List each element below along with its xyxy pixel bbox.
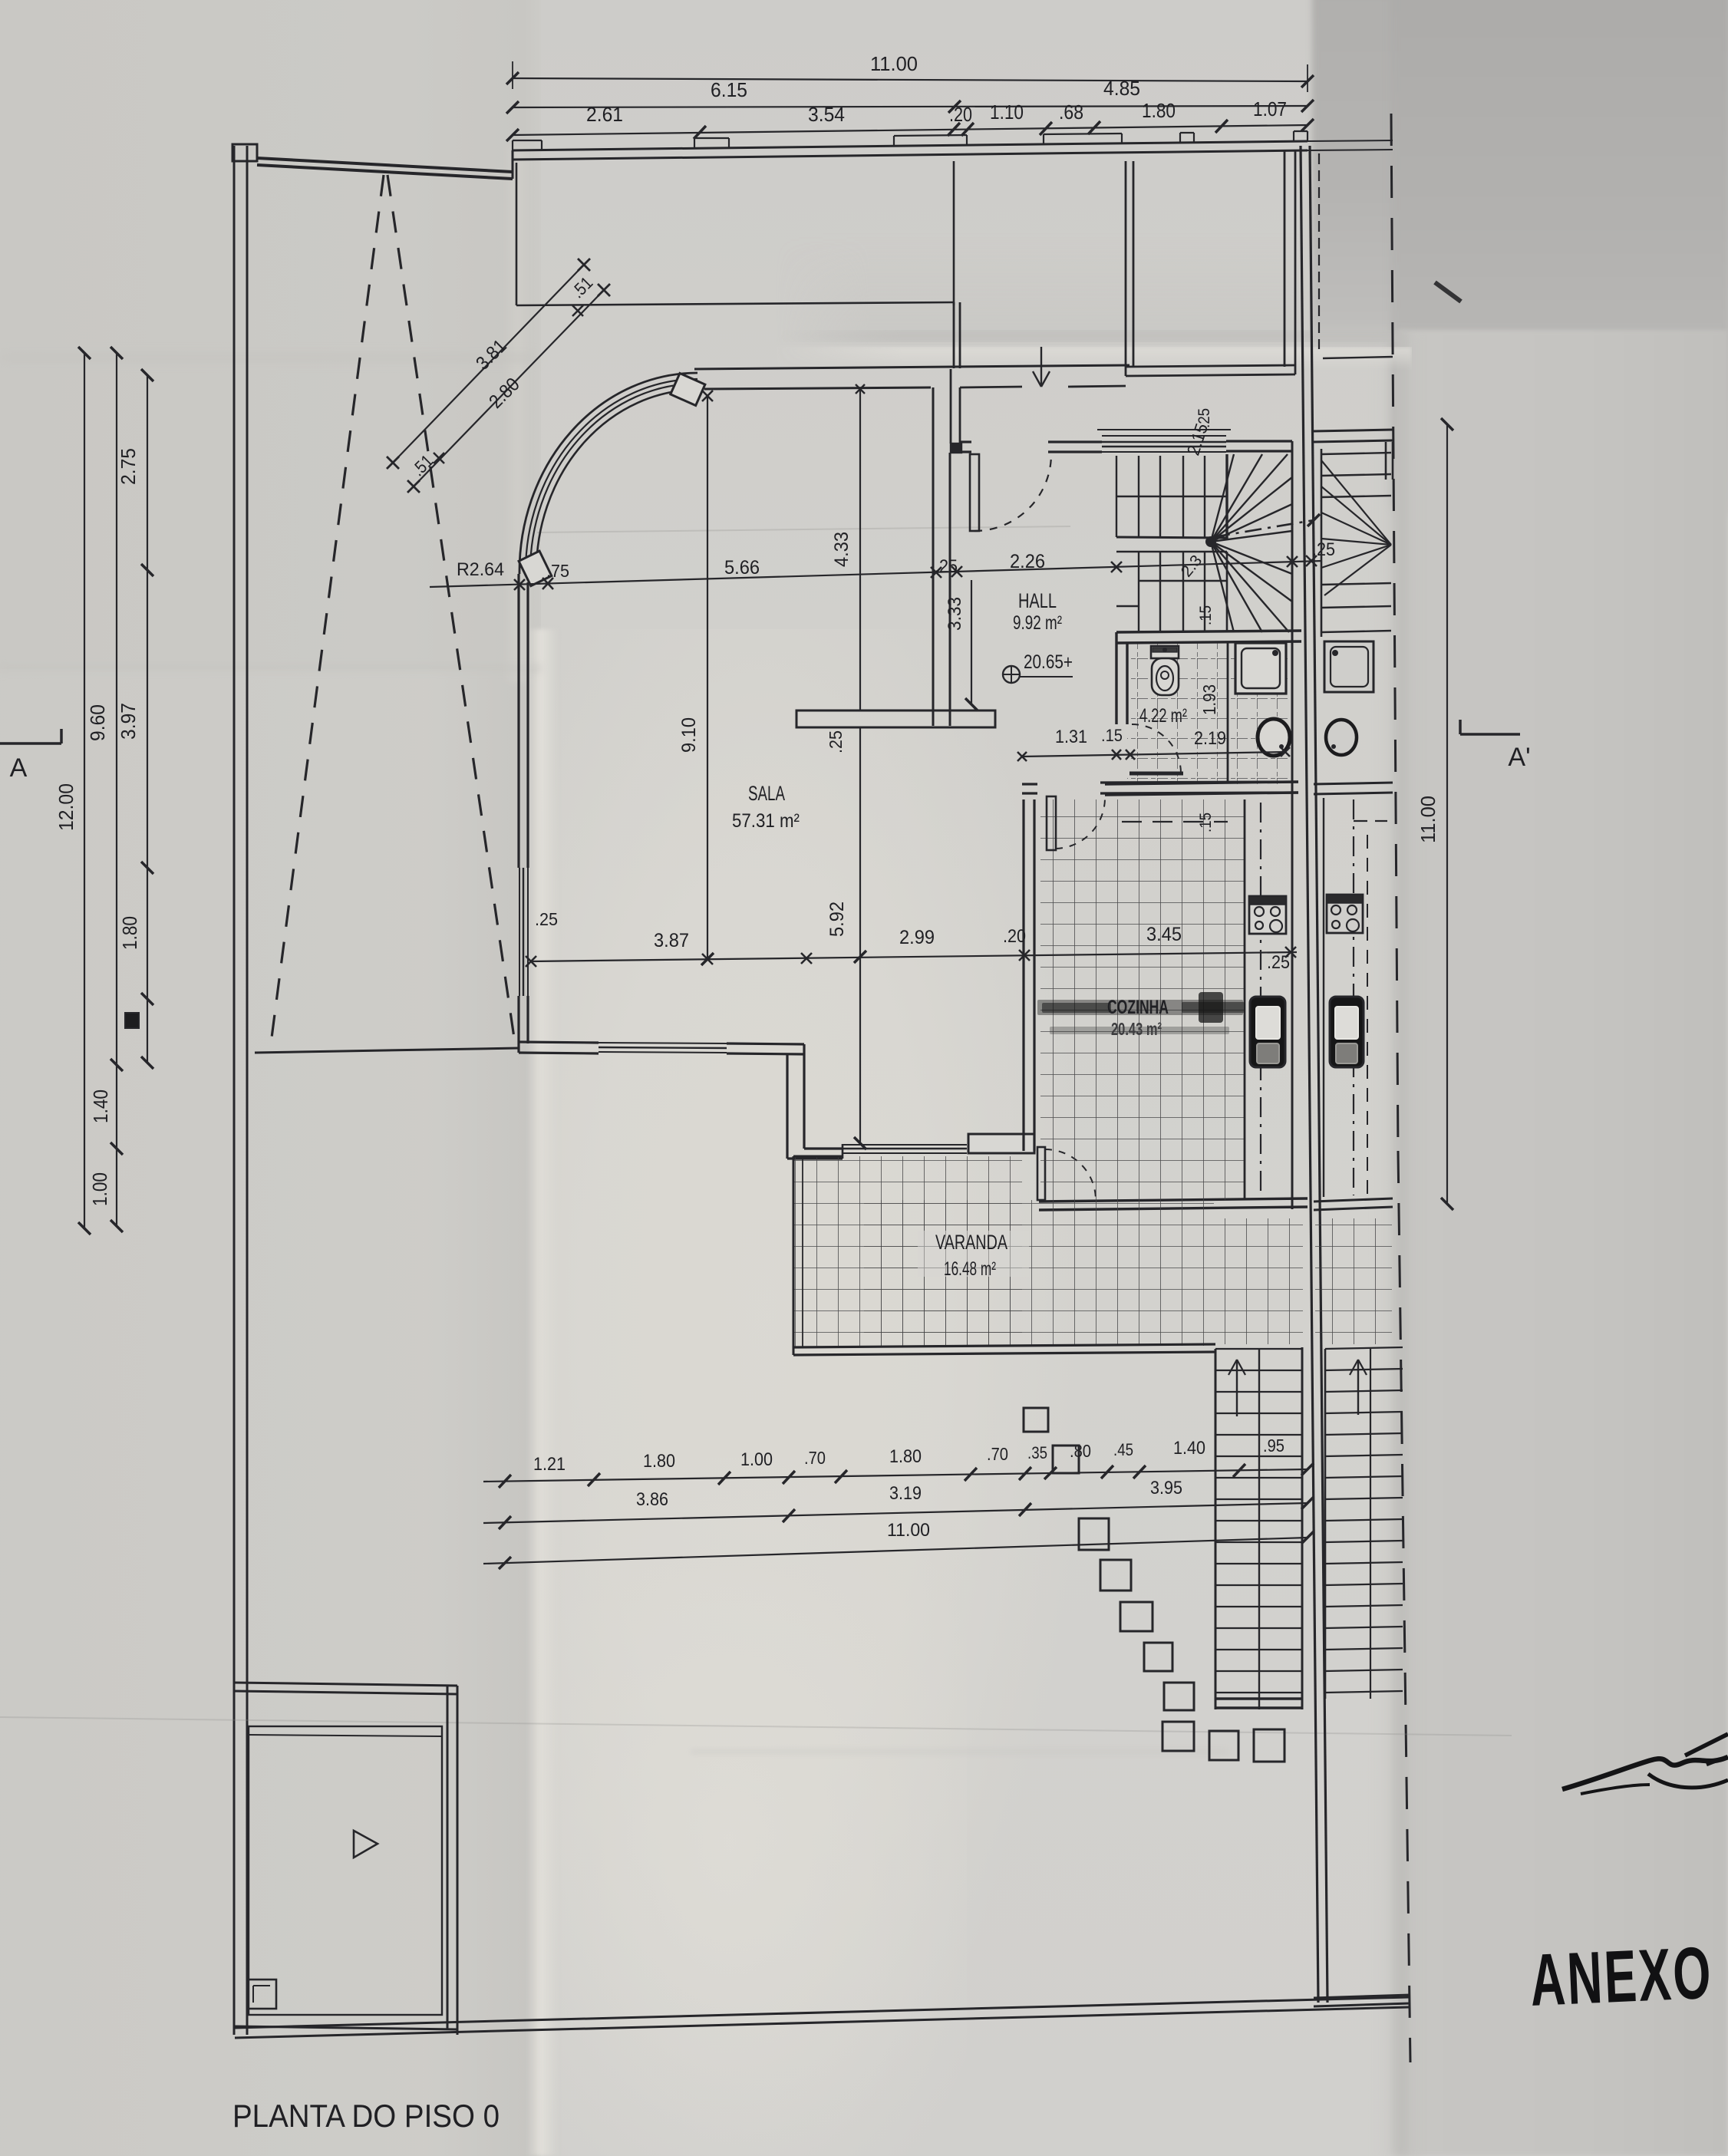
svg-text:1.40: 1.40 <box>1173 1438 1205 1459</box>
svg-text:.68: .68 <box>1059 101 1083 124</box>
svg-text:12.00: 12.00 <box>54 783 77 831</box>
svg-text:2.26: 2.26 <box>1010 551 1045 572</box>
svg-text:PLANTA DO PISO 0: PLANTA DO PISO 0 <box>232 2098 500 2134</box>
svg-text:3.81: 3.81 <box>472 335 511 374</box>
svg-text:5.66: 5.66 <box>724 557 760 579</box>
svg-text:.35: .35 <box>1027 1443 1047 1462</box>
svg-text:.25: .25 <box>1195 408 1213 428</box>
svg-text:2.99: 2.99 <box>899 927 935 948</box>
svg-text:5.92: 5.92 <box>826 902 848 937</box>
svg-text:6.15: 6.15 <box>711 78 747 101</box>
svg-text:3.33: 3.33 <box>945 597 965 631</box>
svg-text:1.80: 1.80 <box>643 1451 675 1472</box>
svg-text:1.31: 1.31 <box>1055 727 1087 747</box>
svg-text:.15: .15 <box>1197 813 1215 832</box>
svg-text:3.19: 3.19 <box>889 1483 922 1504</box>
svg-text:.15: .15 <box>1197 605 1215 625</box>
svg-text:11.00: 11.00 <box>1416 796 1439 843</box>
svg-text:.45: .45 <box>1113 1440 1133 1459</box>
svg-text:.15: .15 <box>1101 726 1123 745</box>
svg-text:9.92 m²: 9.92 m² <box>1013 612 1062 634</box>
svg-text:HALL: HALL <box>1018 589 1057 612</box>
svg-text:.25: .25 <box>1267 952 1290 973</box>
svg-text:11.00: 11.00 <box>870 52 918 75</box>
svg-text:20.65+: 20.65+ <box>1024 651 1073 673</box>
svg-text:11.00: 11.00 <box>887 1520 930 1541</box>
svg-text:.25: .25 <box>826 730 846 753</box>
svg-text:1.00: 1.00 <box>88 1172 111 1206</box>
svg-text:3.87: 3.87 <box>654 930 689 951</box>
svg-text:1.21: 1.21 <box>533 1454 566 1475</box>
svg-text:1.80: 1.80 <box>118 916 141 950</box>
svg-text:COZINHA: COZINHA <box>1107 997 1169 1018</box>
svg-text:4.85: 4.85 <box>1103 77 1140 100</box>
svg-text:ANEXO: ANEXO <box>1528 1932 1714 2022</box>
svg-text:3.54: 3.54 <box>808 103 845 126</box>
svg-text:3.97: 3.97 <box>117 703 140 740</box>
svg-text:20.43 m²: 20.43 m² <box>1111 1019 1162 1039</box>
svg-text:4.22 m²: 4.22 m² <box>1139 705 1187 727</box>
svg-text:.25: .25 <box>535 909 558 929</box>
svg-text:1.10: 1.10 <box>990 101 1024 124</box>
svg-text:1.80: 1.80 <box>889 1446 922 1467</box>
svg-text:3.45: 3.45 <box>1146 924 1182 945</box>
svg-text:A: A <box>10 753 28 783</box>
svg-text:.20: .20 <box>1003 926 1026 947</box>
svg-text:2.61: 2.61 <box>586 103 623 126</box>
svg-text:2.75: 2.75 <box>117 448 140 485</box>
svg-text:1.07: 1.07 <box>1253 97 1287 120</box>
svg-text:.25: .25 <box>935 556 958 577</box>
svg-text:3.95: 3.95 <box>1150 1478 1182 1498</box>
svg-text:9.60: 9.60 <box>86 704 109 741</box>
svg-text:1.80: 1.80 <box>1142 99 1176 122</box>
svg-text:57.31 m²: 57.31 m² <box>732 810 800 832</box>
svg-text:.25: .25 <box>1312 539 1335 560</box>
svg-text:2.3: 2.3 <box>1178 552 1205 580</box>
svg-text:1.40: 1.40 <box>89 1090 112 1123</box>
svg-text:1.00: 1.00 <box>740 1449 773 1470</box>
svg-text:.75: .75 <box>546 561 569 581</box>
svg-text:.80: .80 <box>1070 1441 1091 1461</box>
svg-text:A': A' <box>1508 743 1530 772</box>
svg-text:.20: .20 <box>949 103 972 126</box>
svg-text:.70: .70 <box>987 1444 1008 1464</box>
svg-text:4.33: 4.33 <box>831 532 852 567</box>
svg-text:VARANDA: VARANDA <box>935 1231 1007 1254</box>
svg-text:1.93: 1.93 <box>1199 684 1219 715</box>
svg-text:2.19: 2.19 <box>1194 728 1226 749</box>
svg-text:9.10: 9.10 <box>678 717 700 753</box>
svg-text:3.86: 3.86 <box>636 1489 668 1510</box>
svg-text:16.48 m²: 16.48 m² <box>944 1258 996 1280</box>
svg-text:SALA: SALA <box>748 782 785 805</box>
svg-text:R2.64: R2.64 <box>457 559 504 580</box>
svg-text:.70: .70 <box>804 1448 826 1468</box>
svg-text:.95: .95 <box>1263 1436 1284 1455</box>
